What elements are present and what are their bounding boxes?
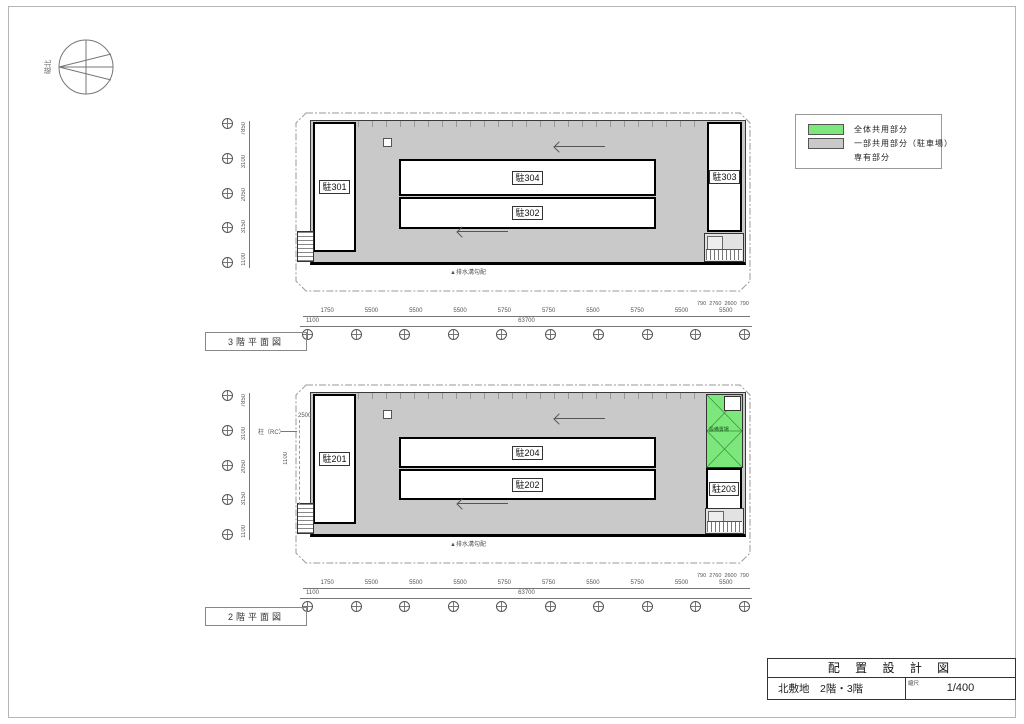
legend-label: 専有部分 (854, 152, 890, 163)
grid-axis-bubble (222, 257, 233, 268)
grid-axis-bubble (399, 329, 410, 340)
unit-label: 駐204 (512, 446, 542, 460)
unit-301: 駐301 (313, 122, 356, 252)
dimension-value: 3100 (241, 155, 247, 168)
dimension-value: 790 (740, 573, 749, 579)
title-block: 配 置 設 計 図 北敷地 2階・3階 縮尺 1/400 (767, 658, 1016, 700)
dimension-values-left-2f: 78503100205031501100 (238, 394, 250, 538)
grid-axis-bubbles-bottom-2f (302, 601, 750, 612)
grid-axis-bubble (593, 601, 604, 612)
equipment-sub-room (724, 396, 741, 411)
stair-elevator-block-3f (704, 233, 744, 262)
dimension-value: 790 (697, 301, 706, 307)
column-dim-top: 2500 (298, 413, 311, 419)
grid-axis-bubble (351, 601, 362, 612)
grid-axis-bubble (222, 390, 233, 401)
grid-axis-bubble (448, 601, 459, 612)
dimension-value: 5500 (438, 308, 482, 314)
dimension-total-value: 63700 (303, 318, 750, 324)
dimension-value: 5500 (394, 580, 438, 586)
grid-axis-bubbles-left-3f (222, 118, 233, 268)
dimension-value: 5500 (571, 580, 615, 586)
grid-axis-bubble (642, 601, 653, 612)
stair-hatch (706, 249, 742, 260)
column-grid-line (299, 420, 300, 505)
unit-304: 駐304 (399, 159, 656, 196)
grid-axis-bubble (690, 329, 701, 340)
grid-axis-bubble (545, 601, 556, 612)
grid-axis-bubble (739, 601, 750, 612)
dimension-value: 5500 (704, 308, 748, 314)
plan-title-2f: 2階平面図 (205, 607, 307, 626)
dimension-value: 790 (740, 301, 749, 307)
drawing-subtitle: 北敷地 2階・3階 (768, 678, 906, 700)
unit-label: 駐304 (512, 171, 542, 185)
dimension-line (300, 326, 752, 327)
dimension-value: 2760 (709, 573, 721, 579)
dimension-value: 5500 (704, 580, 748, 586)
dimension-value: 2600 (724, 573, 736, 579)
drawing-sheet: 磁北 全体共用部分 一部共用部分（駐車場） 専有部分 駐301 駐304 駐30… (0, 0, 1024, 724)
grid-axis-bubble (690, 601, 701, 612)
grid-axis-bubble (222, 222, 233, 233)
scale-cell: 縮尺 1/400 (906, 678, 1015, 700)
legend: 全体共用部分 一部共用部分（駐車場） 専有部分 (795, 114, 942, 169)
stair-hatch (707, 521, 742, 532)
small-marker (383, 138, 392, 147)
dimension-values-bottom-3f: 1750550055005500575057505500575055005500 (305, 308, 748, 314)
dimension-value: 5500 (659, 308, 703, 314)
dimension-line (303, 588, 750, 589)
legend-label: 全体共用部分 (854, 124, 908, 135)
grid-axis-bubble (399, 601, 410, 612)
unit-label: 駐203 (709, 482, 739, 496)
small-marker (383, 410, 392, 419)
dimension-value: 5500 (438, 580, 482, 586)
plan-title-label: 2階平面図 (228, 610, 284, 623)
dimension-value: 5500 (571, 308, 615, 314)
grid-axis-bubbles-left-2f (222, 390, 233, 540)
dimension-value: 5750 (526, 580, 570, 586)
drain-note-2f: ▲排水溝勾配 (450, 539, 486, 548)
dimension-value: 1100 (241, 525, 247, 538)
dimension-value: 3100 (241, 427, 247, 440)
unit-label: 駐302 (512, 206, 542, 220)
dimension-value: 5750 (615, 580, 659, 586)
unit-203: 駐203 (706, 468, 742, 510)
dimension-value: 5500 (349, 580, 393, 586)
dimension-value: 1750 (305, 308, 349, 314)
drain-note-3f: ▲排水溝勾配 (450, 267, 486, 276)
dimension-value: 3150 (241, 492, 247, 505)
grid-axis-bubble (351, 329, 362, 340)
stair-block-left-3f (297, 231, 314, 262)
grid-axis-bubble (222, 529, 233, 540)
dimension-value: 7850 (241, 394, 247, 407)
north-compass-icon: 磁北 (38, 30, 120, 104)
dimension-value: 2760 (709, 301, 721, 307)
unit-label: 駐303 (709, 170, 739, 184)
dimension-value: 5500 (659, 580, 703, 586)
plan-title-3f: 3階平面図 (205, 332, 307, 351)
parking-deck-2f: 駐201 駐204 駐202 設備置場 駐203 (310, 392, 746, 537)
legend-swatch-green (808, 124, 844, 135)
dimension-value: 5750 (526, 308, 570, 314)
unit-label: 駐201 (319, 452, 349, 466)
dimension-value: 5750 (615, 308, 659, 314)
lane-arrow (458, 231, 508, 232)
grid-axis-bubble (496, 601, 507, 612)
grid-axis-bubble (222, 460, 233, 471)
lane-arrow (555, 418, 605, 419)
parking-stall-ticks (358, 393, 704, 399)
dimension-values-right-2f: 79027602600790 (697, 573, 749, 579)
drawing-title: 配 置 設 計 図 (768, 659, 1015, 678)
unit-label: 駐301 (319, 180, 349, 194)
utility-room (707, 236, 723, 250)
unit-201: 駐201 (313, 394, 356, 524)
legend-swatch-gray (808, 138, 844, 149)
grid-axis-bubble (642, 329, 653, 340)
dimension-line (303, 316, 750, 317)
title-block-row: 北敷地 2階・3階 縮尺 1/400 (768, 678, 1015, 700)
dimension-value: 1750 (305, 580, 349, 586)
dimension-value: 5500 (349, 308, 393, 314)
plan-title-label: 3階平面図 (228, 335, 284, 348)
scale-value: 1/400 (906, 682, 1015, 694)
parking-deck-3f: 駐301 駐304 駐302 駐303 (310, 120, 746, 265)
leader-line (281, 431, 297, 432)
grid-axis-bubble (222, 494, 233, 505)
compass-label: 磁北 (43, 60, 52, 74)
legend-row: 全体共用部分 (808, 122, 941, 136)
grid-axis-bubble (222, 118, 233, 129)
dimension-value: 5500 (394, 308, 438, 314)
unit-204: 駐204 (399, 437, 656, 468)
grid-axis-bubble (222, 425, 233, 436)
dimension-line (300, 598, 752, 599)
dimension-value: 7850 (241, 122, 247, 135)
column-dim-side: 1100 (283, 452, 289, 465)
dimension-value: 2050 (241, 188, 247, 201)
dimension-value: 790 (697, 573, 706, 579)
dimension-value: 5750 (482, 308, 526, 314)
unit-label: 駐202 (512, 478, 542, 492)
grid-axis-bubble (545, 329, 556, 340)
dimension-total-value: 63700 (303, 590, 750, 596)
dimension-values-right-3f: 79027602600790 (697, 301, 749, 307)
stair-block-left-2f (297, 503, 314, 534)
equipment-label: 設備置場 (709, 426, 729, 433)
dimension-values-left-3f: 78503100205031501100 (238, 122, 250, 266)
parking-stall-ticks (358, 121, 704, 127)
grid-axis-bubble (739, 329, 750, 340)
stair-elevator-block-2f (705, 508, 744, 534)
grid-axis-bubble (496, 329, 507, 340)
dimension-value: 2600 (724, 301, 736, 307)
grid-axis-bubble (222, 153, 233, 164)
legend-row: 一部共用部分（駐車場） (808, 136, 941, 150)
grid-axis-bubble (222, 188, 233, 199)
dimension-value: 3150 (241, 220, 247, 233)
dimension-value: 2050 (241, 460, 247, 473)
dimension-values-bottom-2f: 1750550055005500575057505500575055005500 (305, 580, 748, 586)
lane-arrow (458, 503, 508, 504)
legend-label: 一部共用部分（駐車場） (854, 138, 953, 149)
grid-axis-bubble (593, 329, 604, 340)
dimension-value: 1100 (241, 253, 247, 266)
grid-axis-bubbles-bottom-3f (302, 329, 750, 340)
unit-303: 駐303 (707, 122, 742, 232)
grid-axis-bubble (448, 329, 459, 340)
lane-arrow (555, 146, 605, 147)
legend-swatch-none (808, 152, 844, 163)
equipment-yard-area: 設備置場 (706, 394, 743, 468)
legend-row: 専有部分 (808, 150, 941, 164)
unit-302: 駐302 (399, 197, 656, 229)
dimension-value: 5750 (482, 580, 526, 586)
unit-202: 駐202 (399, 469, 656, 500)
